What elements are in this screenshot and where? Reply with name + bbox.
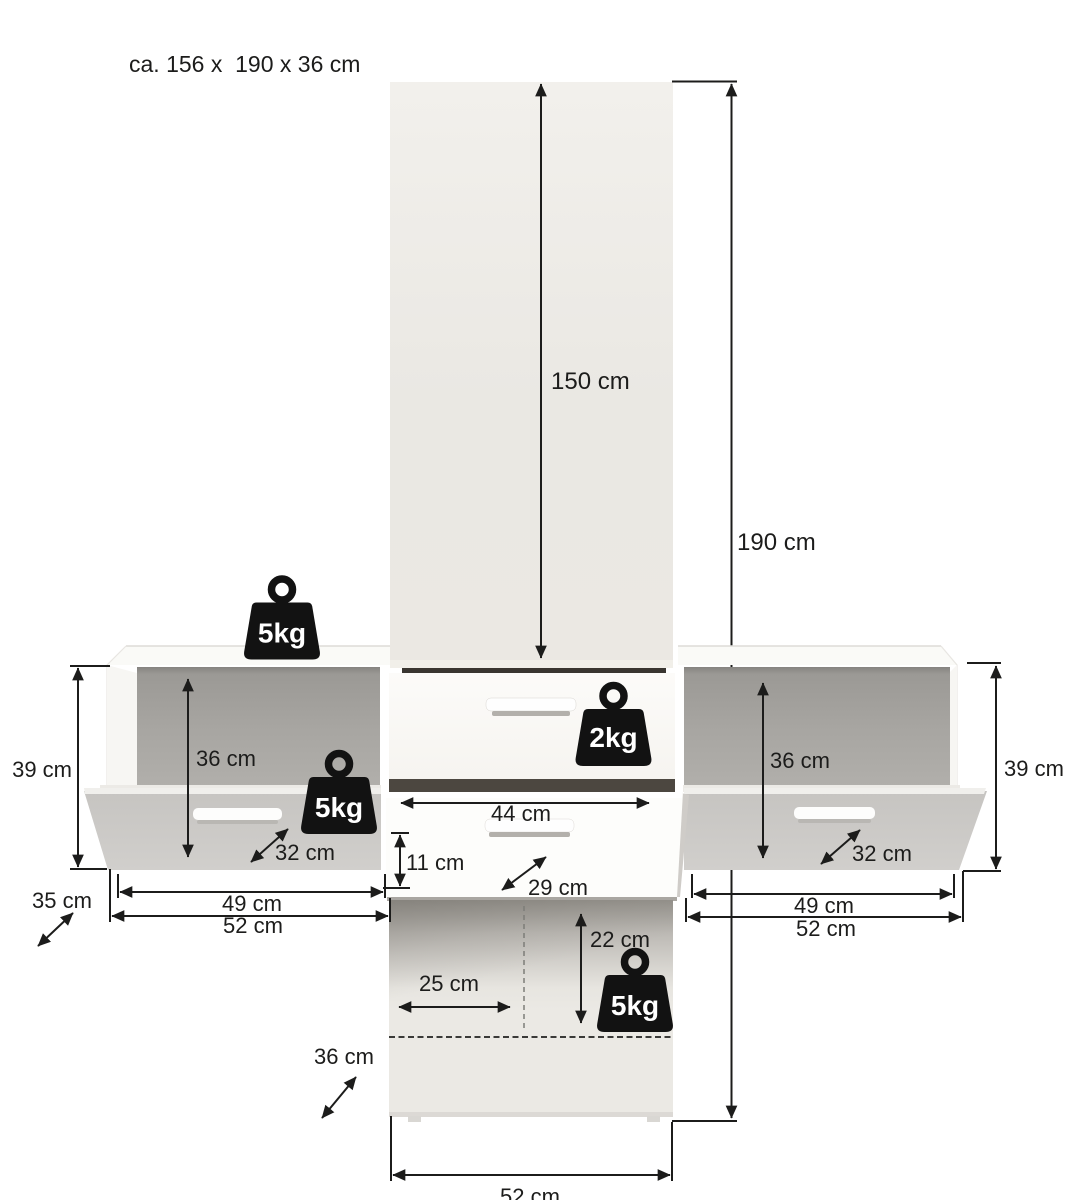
svg-text:52 cm: 52 cm [500,1184,560,1200]
svg-text:36 cm: 36 cm [314,1044,374,1069]
svg-text:5kg: 5kg [611,990,659,1021]
svg-text:52 cm: 52 cm [223,913,283,938]
svg-text:44 cm: 44 cm [491,801,551,826]
svg-text:36 cm: 36 cm [770,748,830,773]
svg-text:5kg: 5kg [258,618,306,649]
svg-text:36 cm: 36 cm [196,746,256,771]
svg-text:49 cm: 49 cm [794,893,854,918]
svg-text:52 cm: 52 cm [796,916,856,941]
svg-text:32 cm: 32 cm [275,840,335,865]
svg-text:190 cm: 190 cm [737,529,816,556]
svg-text:150 cm: 150 cm [551,368,630,395]
svg-text:ca. 156 x 190 x 36 cm: ca. 156 x 190 x 36 cm [129,51,360,77]
svg-text:39 cm: 39 cm [1004,756,1064,781]
svg-text:32 cm: 32 cm [852,841,912,866]
svg-text:5kg: 5kg [315,792,363,823]
svg-text:29 cm: 29 cm [528,875,588,900]
svg-text:11 cm: 11 cm [406,850,464,875]
svg-text:25 cm: 25 cm [419,971,479,996]
svg-text:35 cm: 35 cm [32,888,92,913]
svg-text:39 cm: 39 cm [12,757,72,782]
svg-text:22 cm: 22 cm [590,927,650,952]
svg-text:2kg: 2kg [589,722,637,753]
